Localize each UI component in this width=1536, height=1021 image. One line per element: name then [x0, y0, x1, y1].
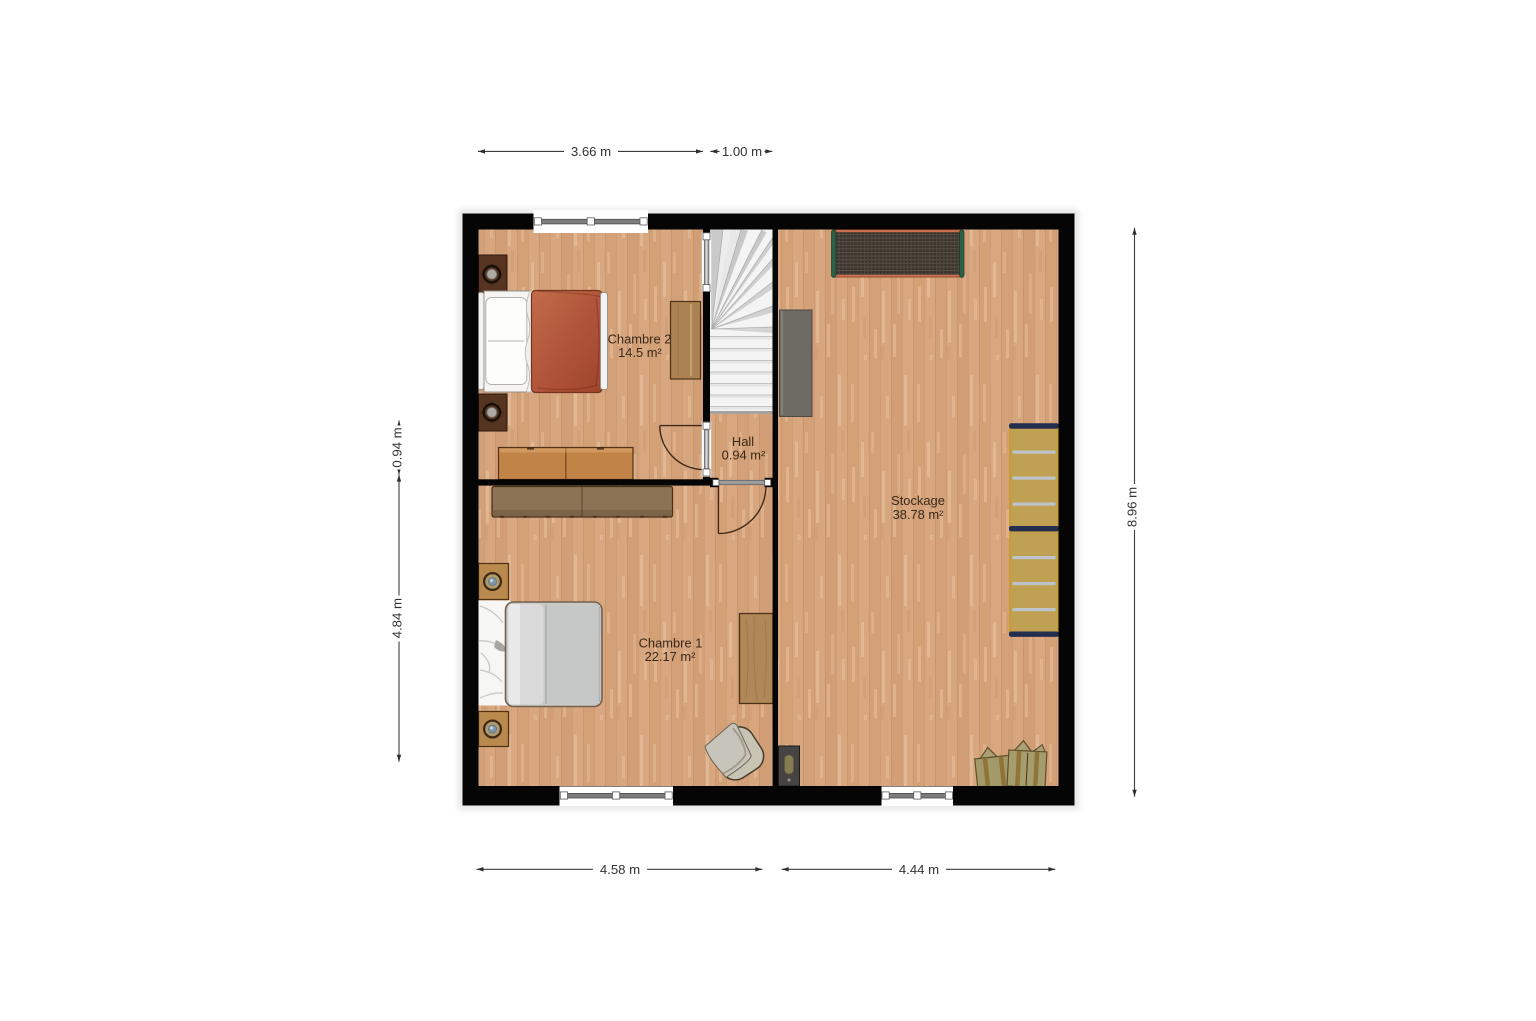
svg-text:1.00 m: 1.00 m: [722, 144, 762, 159]
svg-text:22.17 m²: 22.17 m²: [645, 649, 697, 664]
svg-text:0.94 m: 0.94 m: [390, 427, 405, 467]
svg-text:38.78 m²: 38.78 m²: [893, 507, 945, 522]
svg-text:4.84 m: 4.84 m: [390, 598, 405, 638]
svg-text:3.66 m: 3.66 m: [571, 144, 611, 159]
svg-text:4.44 m: 4.44 m: [899, 862, 939, 877]
svg-text:8.96 m: 8.96 m: [1125, 487, 1140, 527]
svg-text:14.5 m²: 14.5 m²: [618, 345, 662, 360]
svg-text:4.58 m: 4.58 m: [600, 862, 640, 877]
svg-text:0.94 m²: 0.94 m²: [722, 447, 766, 462]
